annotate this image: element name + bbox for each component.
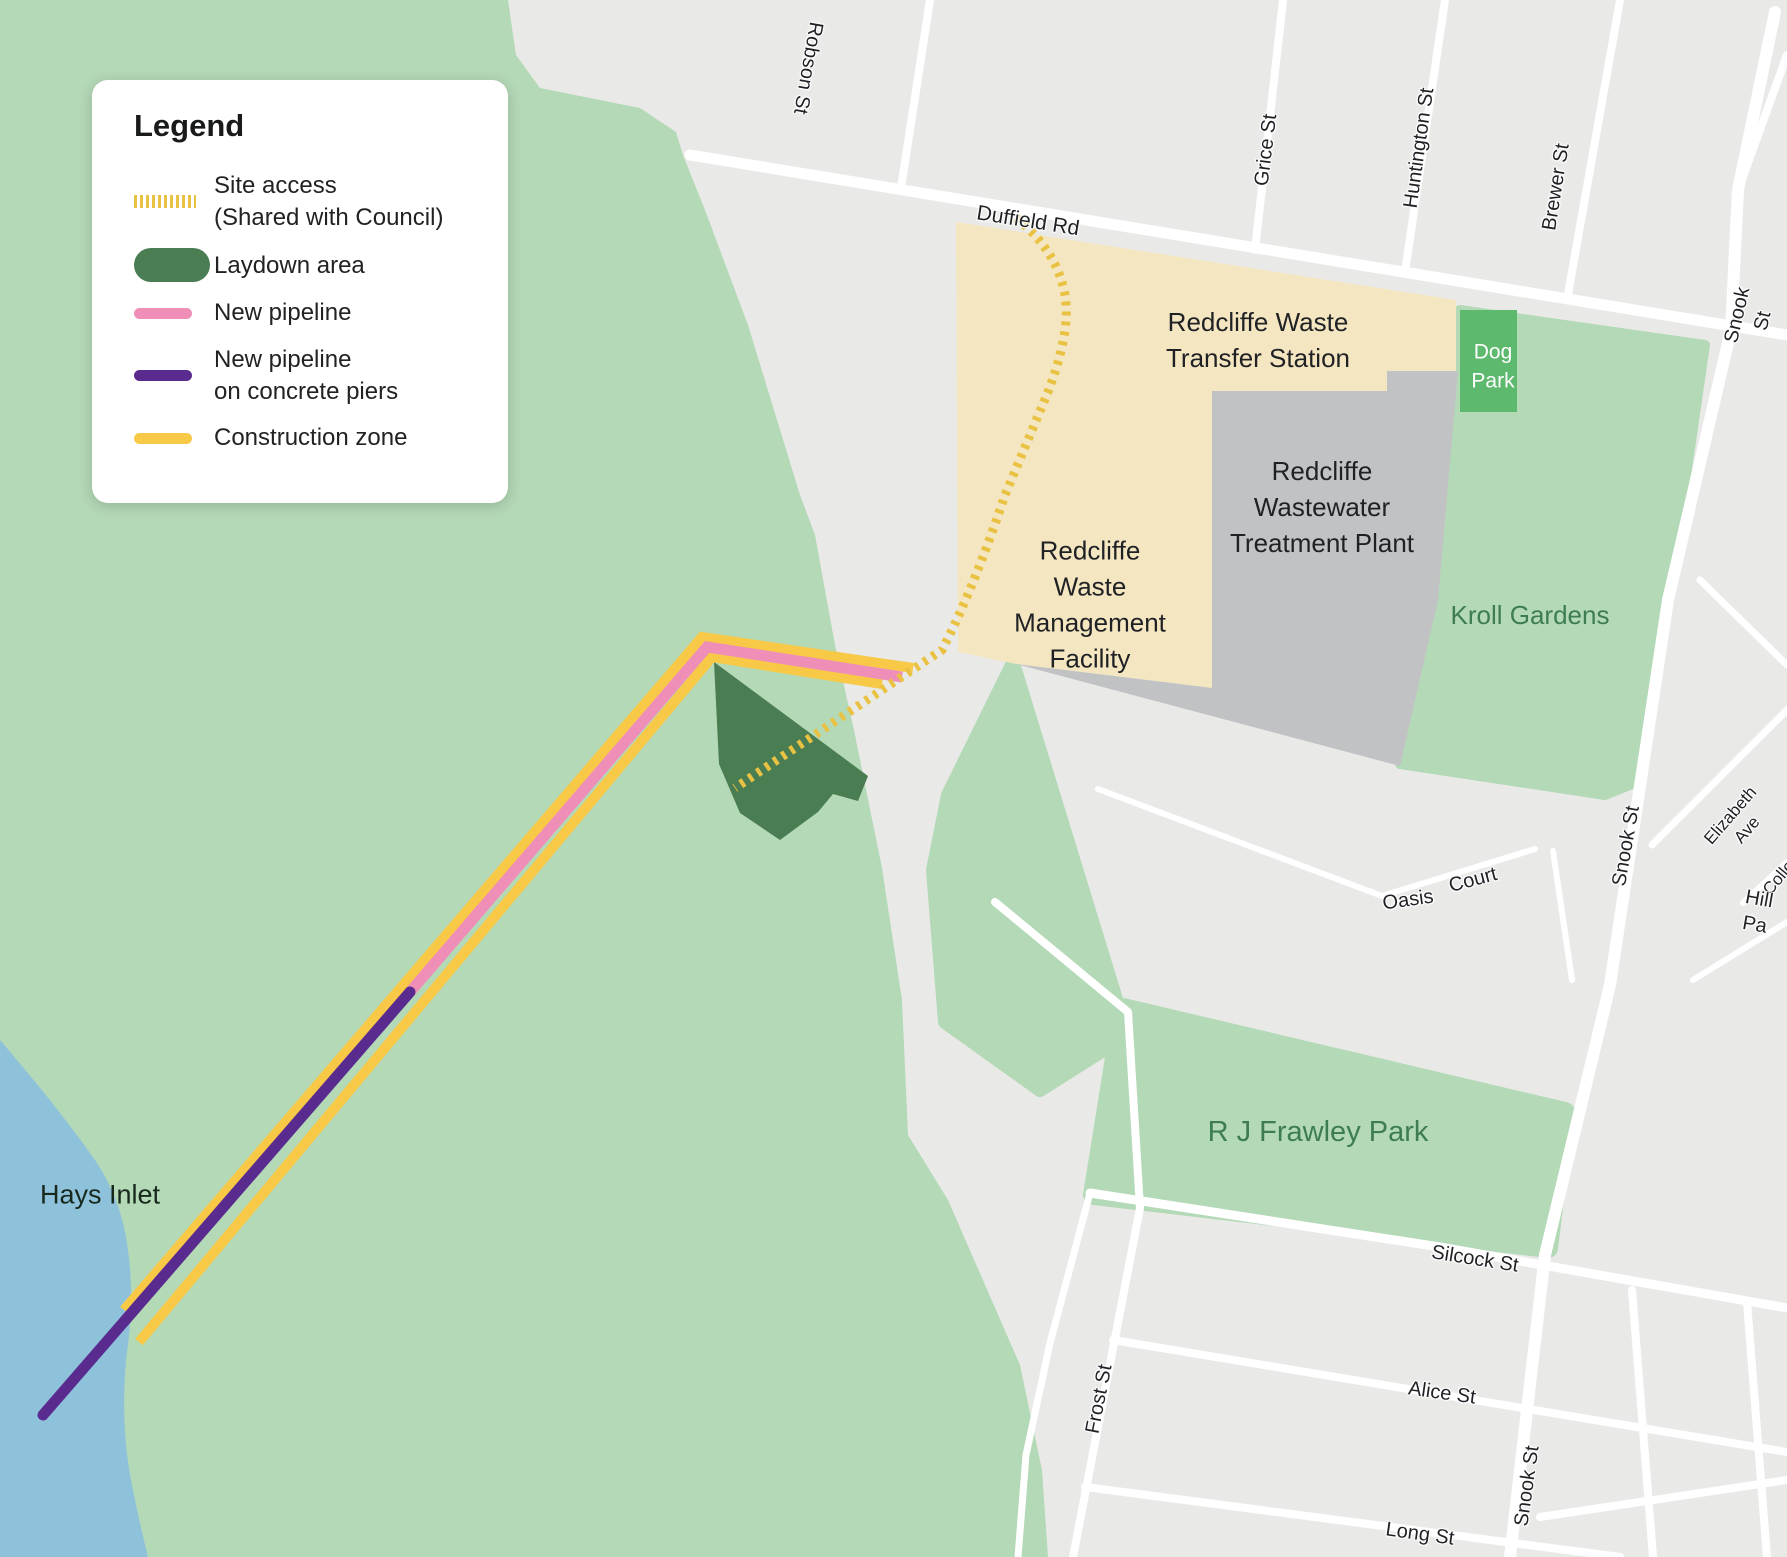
legend-item-site-access: Site access (Shared with Council) [118, 170, 478, 233]
management-facility-label: Redcliffe Waste Management Facility [1014, 533, 1166, 677]
hill-pa-label: Hill Pa [1738, 884, 1777, 940]
dog-park-label: Dog Park [1471, 338, 1514, 397]
legend-item-label: New pipeline [214, 297, 351, 329]
long-st-label: Long St [1384, 1516, 1456, 1551]
laydown-area-swatch [134, 248, 210, 282]
pipeline-piers-swatch [134, 370, 192, 381]
snook-st-bottom-label: Snook St [1508, 1444, 1545, 1528]
treatment-plant-label: Redcliffe Wastewater Treatment Plant [1230, 454, 1414, 562]
oasis-court-label-2: Court [1446, 861, 1500, 899]
legend-item-label: Construction zone [214, 422, 407, 454]
legend-panel: Legend Site access (Shared with Council)… [92, 80, 508, 503]
construction-zone-swatch [134, 433, 192, 444]
site-access-dashed-swatch [134, 195, 196, 208]
frost-st-label: Frost St [1080, 1362, 1119, 1436]
legend-item-construction-zone: Construction zone [118, 422, 478, 454]
robson-st-label: Robson St [787, 20, 829, 116]
legend-item-label: Laydown area [214, 250, 365, 282]
alice-st-label: Alice St [1407, 1375, 1478, 1410]
silcock-st-label: Silcock St [1430, 1239, 1521, 1278]
legend-item-laydown-area: Laydown area [118, 248, 478, 282]
huntington-st-label: Huntington St [1398, 86, 1441, 210]
swatch-wrap [118, 308, 214, 319]
kroll-gardens-label: Kroll Gardens [1451, 599, 1610, 633]
legend-item-pipeline-piers: New pipeline on concrete piers [118, 344, 478, 407]
duffield-rd-label: Duffield Rd [975, 199, 1082, 242]
frawley-park-label: R J Frawley Park [1208, 1114, 1429, 1152]
brewer-st-label: Brewer St [1536, 142, 1575, 233]
elizabeth-ave-label: Elizabeth Ave [1699, 782, 1778, 864]
swatch-wrap [118, 433, 214, 444]
legend-item-new-pipeline: New pipeline [118, 297, 478, 329]
legend-title: Legend [134, 108, 478, 144]
snook-st-top-label: Snook St [1718, 285, 1781, 352]
oasis-court-label-1: Oasis [1381, 884, 1435, 917]
project-map-page: { "colors":{ "urban":"#e9eae8","nature":… [0, 0, 1787, 1557]
grice-st-label: Grice St [1249, 113, 1284, 188]
swatch-wrap [118, 248, 214, 282]
swatch-wrap [118, 195, 214, 208]
new-pipeline-swatch [134, 308, 192, 319]
swatch-wrap [118, 370, 214, 381]
hays-inlet-label: Hays Inlet [40, 1177, 160, 1212]
legend-item-label: New pipeline on concrete piers [214, 344, 398, 407]
snook-st-mid-label: Snook St [1606, 804, 1646, 888]
legend-item-label: Site access (Shared with Council) [214, 170, 443, 233]
transfer-station-label: Redcliffe Waste Transfer Station [1166, 305, 1350, 377]
